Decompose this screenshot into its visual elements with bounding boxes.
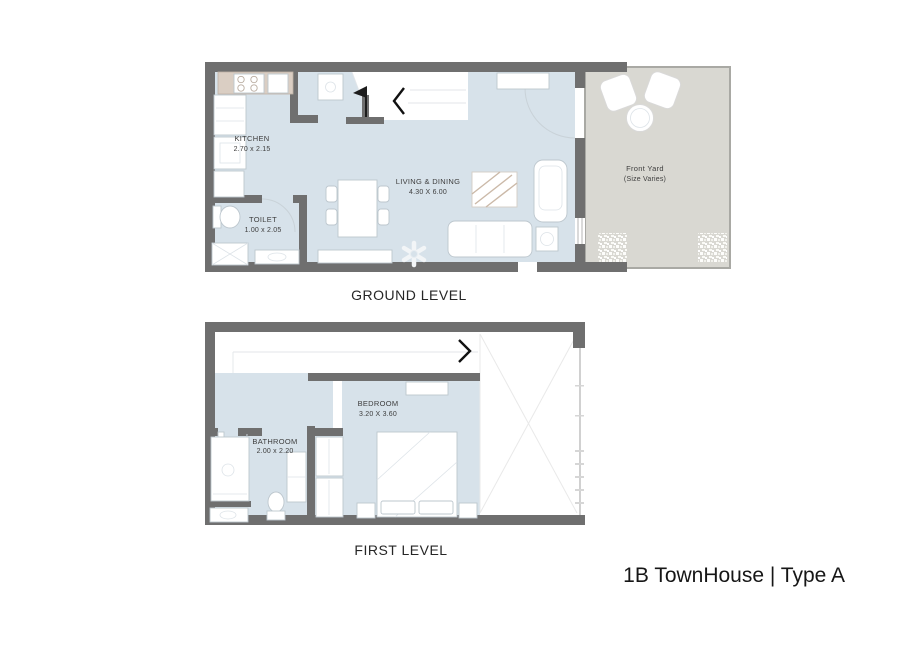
floor-plan-sheet: Front Yard (Size Varies) [0,0,915,655]
room-label-front-yard: Front Yard [626,164,664,173]
toilet-wc [213,206,240,228]
room-dims-bedroom: 3.20 X 3.60 [359,411,397,418]
front-yard: Front Yard (Size Varies) [585,67,730,268]
toilet-shower [212,243,248,265]
wall-console [497,73,549,89]
yard-table [627,105,654,132]
first-level-caption: FIRST LEVEL [354,542,447,558]
glazing-edge [575,348,584,515]
staircase [352,72,468,120]
lounge-chair [534,160,567,222]
toilet-sink [255,250,299,264]
room-label-kitchen: KITCHEN [234,134,269,143]
bathroom-shower [211,437,249,501]
room-label-bedroom: BEDROOM [358,399,399,408]
kitchen-counter [218,72,293,94]
room-dims-bathroom: 2.00 x 2.20 [257,448,294,455]
sofa [448,221,532,257]
ground-level-plan: Front Yard (Size Varies) [205,62,730,303]
ground-level-caption: GROUND LEVEL [351,287,467,303]
nightstand [357,503,375,518]
tv-console [318,250,392,263]
room-label-bathroom: BATHROOM [252,437,297,446]
room-dims-kitchen: 2.70 x 2.15 [234,146,271,153]
floor-plan-canvas: Front Yard (Size Varies) [0,0,915,655]
page-title: 1B TownHouse | Type A [623,564,845,587]
bedroom-door [333,381,342,428]
bathroom-vanity [210,508,248,522]
shrub-planter [598,233,627,262]
room-dims-front-yard: (Size Varies) [624,176,666,183]
bathroom-cabinet [287,452,306,502]
nightstand [459,503,477,518]
room-dims-toilet: 1.00 x 2.05 [245,227,282,234]
window [575,218,585,244]
room-dims-living-dining: 4.30 X 6.00 [409,189,447,196]
rug [472,172,517,207]
shrub-planter [698,233,727,262]
bed [377,432,457,517]
room-label-living-dining: LIVING & DINING [396,177,461,186]
utility-box [318,74,343,100]
room-label-toilet: TOILET [249,215,277,224]
dresser [406,382,448,395]
bathroom-wc [267,492,285,520]
first-level-plan: BATHROOM 2.00 x 2.20 BEDROOM 3.20 X 3.60… [205,322,585,558]
side-table [536,227,558,251]
